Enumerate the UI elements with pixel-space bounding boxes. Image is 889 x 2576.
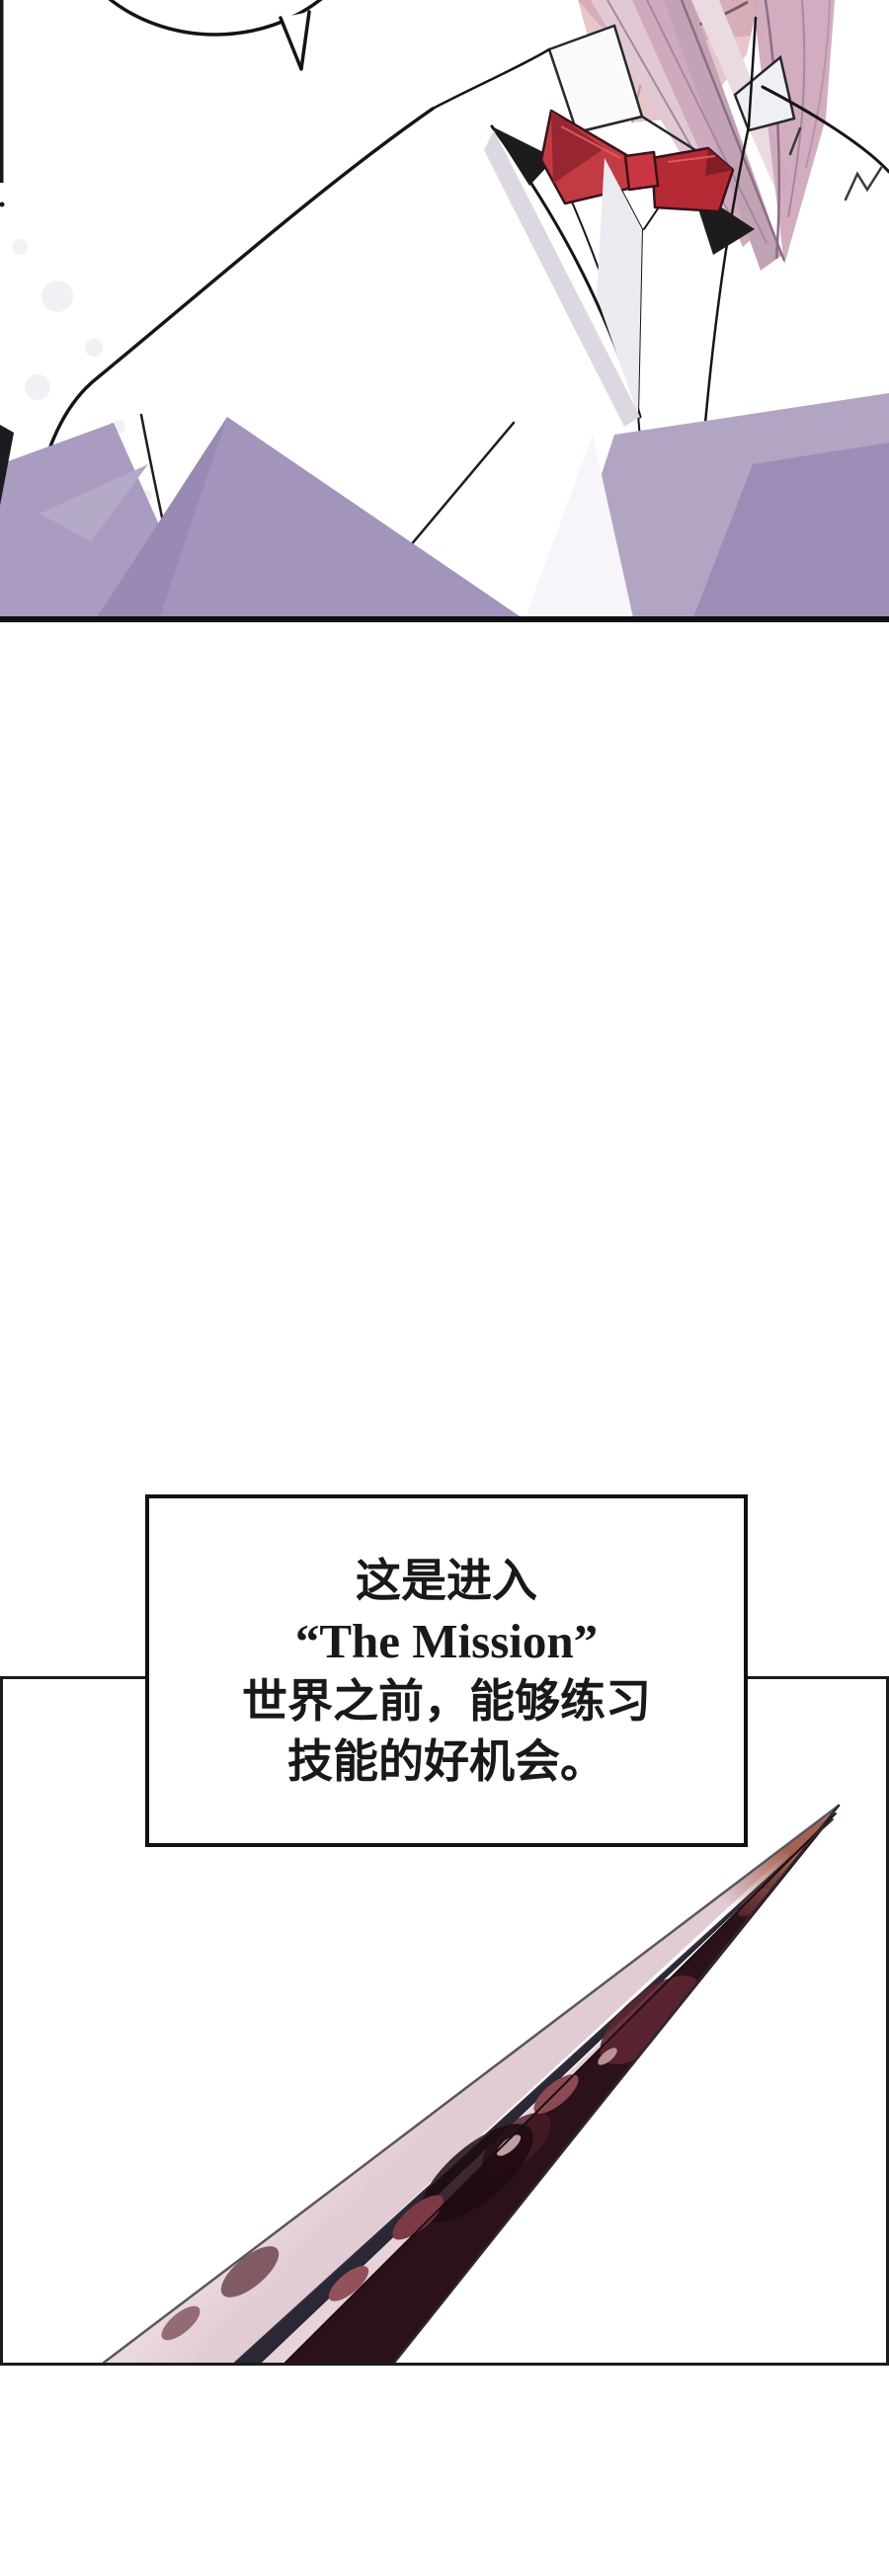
bottom-margin (0, 2366, 889, 2576)
comic-page: 这是进入 “The Mission” 世界之前，能够练习 技能的好机会。 (0, 0, 889, 2576)
panel-border-bottom (0, 616, 889, 622)
narration-line-3: 世界之前，能够练习 (242, 1671, 651, 1731)
narration-box: 这是进入 “The Mission” 世界之前，能够练习 技能的好机会。 (145, 1494, 748, 1847)
narration-line-1: 这是进入 (356, 1551, 537, 1611)
character-artwork (0, 0, 889, 622)
narration-line-2: “The Mission” (295, 1611, 598, 1671)
panel-character (0, 0, 889, 622)
narration-line-4: 技能的好机会。 (287, 1731, 606, 1792)
